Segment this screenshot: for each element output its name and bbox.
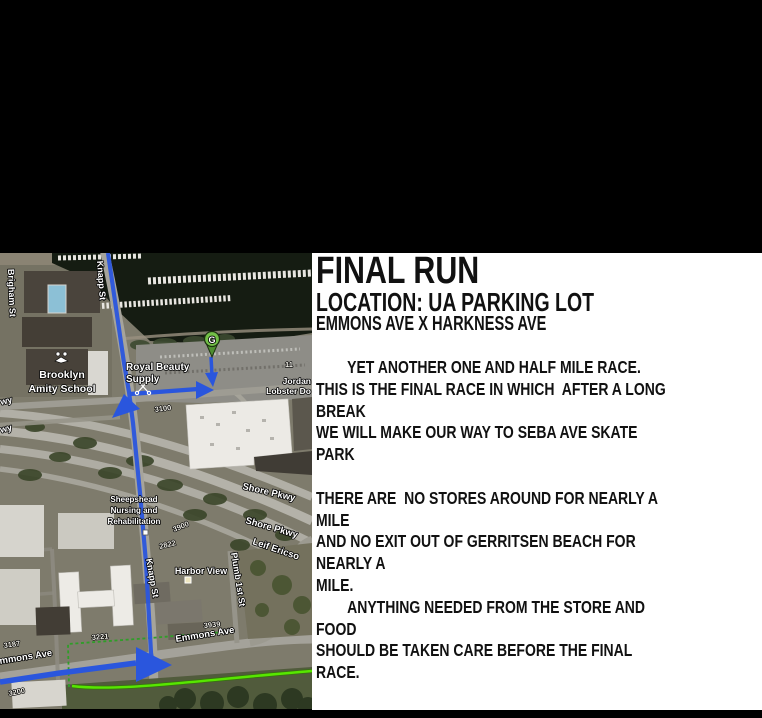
body-line: WE WILL MAKE OUR WAY TO SEBA AVE SKATE P… [316,422,673,466]
top-black-area [0,0,762,253]
map-label-amity-school: Amity School [28,383,95,395]
map-label-brigham-st: Brigham St [6,269,18,317]
map-label-sheepshead: Sheepshead [110,495,157,504]
map-label-supply: Supply [126,374,160,385]
body-line: YET ANOTHER ONE AND HALF MILE RACE. [316,357,673,379]
pin-letter: G [208,335,215,345]
map-label-brooklyn: Brooklyn [39,369,85,381]
map-image: G Knapp St Brigham St Knapp St Plumb 1st… [0,253,312,709]
body-line: AND NO EXIT OUT OF GERRITSEN BEACH FOR N… [316,531,673,575]
body-line: THIS IS THE FINAL RACE IN WHICH AFTER A … [316,379,673,423]
map-label-rehabilitation: Rehabilitation [108,517,161,526]
map-label-jordan: Jordan [283,376,311,386]
cross-streets-subtitle: EMMONS AVE X HARKNESS AVE [316,315,642,333]
flyer-page: G Knapp St Brigham St Knapp St Plumb 1st… [0,0,762,718]
map-label-nursing-and: Nursing and [111,506,158,515]
body-line [316,466,673,488]
flyer-panel: FINAL RUN LOCATION: UA PARKING LOT EMMON… [312,253,762,710]
school-pool [48,285,66,313]
map-label-royal-beauty: Royal Beauty [126,362,190,373]
map-label-lobster-dock: Lobster Do [266,386,311,396]
map-label-harbor-view: Harbor View [175,566,228,576]
body-line: THERE ARE NO STORES AROUND FOR NEARLY A … [316,488,673,532]
map-marker-square [143,530,148,535]
location-subtitle: LOCATION: UA PARKING LOT [316,289,651,315]
map-label-3221: 3221 [91,632,108,642]
body-line: ANYTHING NEEDED FROM THE STORE AND FOOD [316,597,673,641]
page-title: FINAL RUN [316,253,673,289]
bottom-black-bar [0,710,762,718]
body-line: MILE. [316,575,673,597]
map-label-3939: 3939 [203,619,221,630]
body-line: SHOULD BE TAKEN CARE BEFORE THE FINAL RA… [316,640,673,684]
body-text: YET ANOTHER ONE AND HALF MILE RACE. THIS… [316,357,762,684]
map-label-11: 11 [285,360,293,369]
harbor-view-marker [185,577,191,583]
